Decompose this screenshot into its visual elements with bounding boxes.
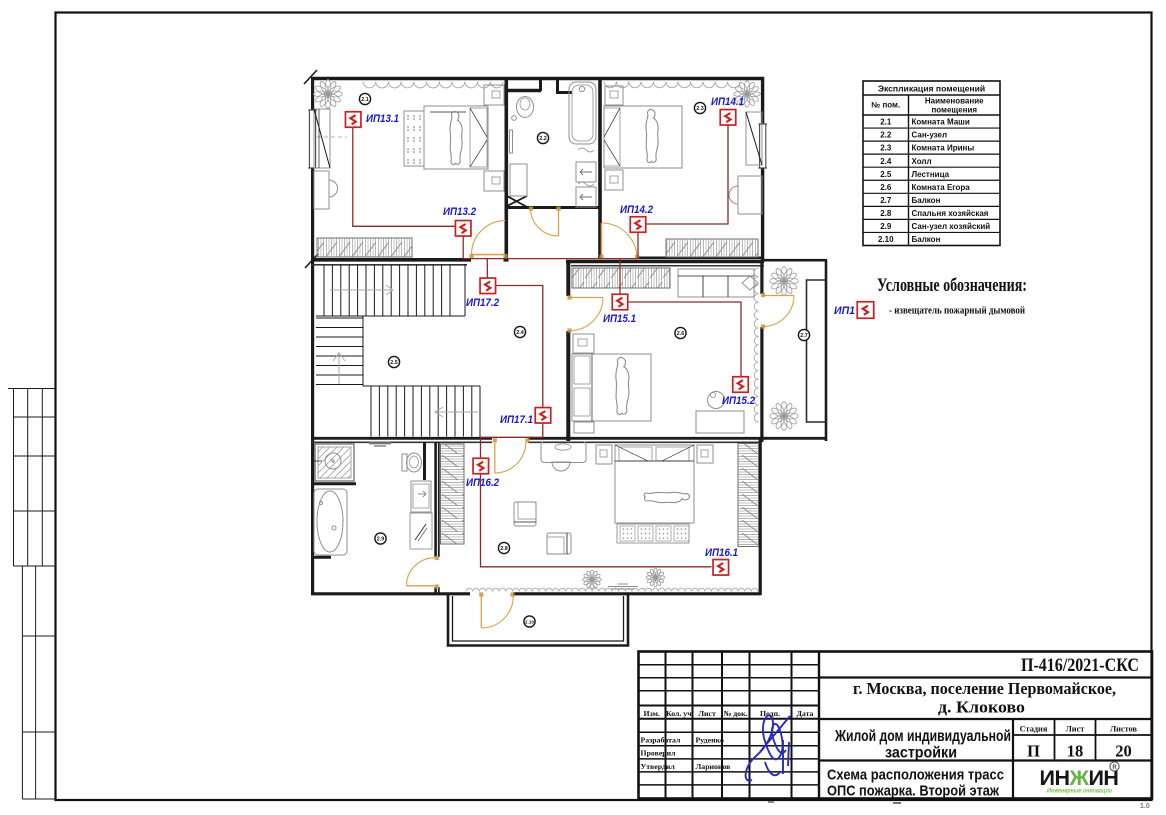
svg-text:Экспликация помещений: Экспликация помещений <box>878 84 985 94</box>
svg-text:2.3: 2.3 <box>696 106 704 112</box>
svg-text:ИП15.1: ИП15.1 <box>603 313 636 325</box>
svg-text:Холл: Холл <box>912 157 932 166</box>
svg-text:2.8: 2.8 <box>880 209 892 218</box>
svg-text:2.2: 2.2 <box>539 136 547 142</box>
svg-text:П-416/2021-СКС: П-416/2021-СКС <box>1021 655 1139 676</box>
svg-text:Инженерные инновации: Инженерные инновации <box>1047 788 1112 795</box>
svg-text:Комната Егора: Комната Егора <box>912 183 971 192</box>
svg-text:ИНЖИН: ИНЖИН <box>1040 766 1119 790</box>
svg-text:Жилой дом индивидуальной: Жилой дом индивидуальной <box>834 728 1011 745</box>
svg-text:Лист: Лист <box>698 709 716 718</box>
svg-text:Кол. уч: Кол. уч <box>666 709 692 718</box>
svg-text:Спальня хозяйская: Спальня хозяйская <box>912 209 989 218</box>
svg-text:2.1: 2.1 <box>880 118 892 127</box>
svg-text:застройки: застройки <box>885 745 957 762</box>
svg-text:ИП17.1: ИП17.1 <box>500 414 533 426</box>
svg-text:Условные обозначения:: Условные обозначения: <box>877 276 1027 296</box>
svg-text:- извещатель пожарный дымовой: - извещатель пожарный дымовой <box>889 306 1025 317</box>
svg-text:Утвердил: Утвердил <box>641 762 676 771</box>
svg-text:ИП15.2: ИП15.2 <box>722 395 756 407</box>
svg-text:2.5: 2.5 <box>880 170 892 179</box>
svg-text:18: 18 <box>1067 742 1084 761</box>
svg-text:ИП13.1: ИП13.1 <box>366 113 399 125</box>
svg-text:2.6: 2.6 <box>880 183 892 192</box>
svg-text:помещения: помещения <box>931 106 977 115</box>
svg-text:Балкон: Балкон <box>912 235 941 244</box>
svg-text:Проверил: Проверил <box>641 749 677 758</box>
svg-text:2.8: 2.8 <box>500 546 508 552</box>
svg-text:Листов: Листов <box>1110 724 1138 733</box>
svg-text:2.4: 2.4 <box>516 330 524 336</box>
svg-text:д. Клоково: д. Клоково <box>938 698 1025 717</box>
svg-text:Схема расположения трасс: Схема расположения трасс <box>827 767 1004 784</box>
svg-text:ОПС пожарка. Второй этаж: ОПС пожарка. Второй этаж <box>827 783 999 800</box>
svg-text:Комната Ирины: Комната Ирины <box>912 144 975 153</box>
svg-text:2.1: 2.1 <box>361 97 369 103</box>
svg-text:2.7: 2.7 <box>800 333 808 339</box>
svg-text:Сан-узел: Сан-узел <box>912 131 948 140</box>
svg-text:ИП16.2: ИП16.2 <box>466 477 500 489</box>
svg-text:Руденко: Руденко <box>696 735 724 744</box>
svg-text:Балкон: Балкон <box>912 196 941 205</box>
svg-text:ИП16.1: ИП16.1 <box>705 547 738 559</box>
svg-text:2.2: 2.2 <box>880 131 892 140</box>
svg-text:Наименование: Наименование <box>925 97 984 106</box>
svg-text:Изм.: Изм. <box>644 709 660 718</box>
svg-text:г. Москва, поселение Первомайс: г. Москва, поселение Первомайское, <box>853 679 1116 698</box>
svg-text:Дата: Дата <box>797 709 814 718</box>
svg-text:20: 20 <box>1115 742 1132 761</box>
svg-text:Разработал: Разработал <box>641 735 682 744</box>
svg-text:Стадия: Стадия <box>1020 724 1048 733</box>
svg-text:2.3: 2.3 <box>880 144 892 153</box>
svg-text:Лист: Лист <box>1066 724 1085 733</box>
svg-text:ИП13.2: ИП13.2 <box>443 206 477 218</box>
svg-text:2.6: 2.6 <box>677 331 685 337</box>
svg-text:2.10: 2.10 <box>878 235 894 244</box>
svg-text:ИП14.2: ИП14.2 <box>620 204 654 216</box>
svg-text:2.10: 2.10 <box>525 619 534 624</box>
svg-text:2.4: 2.4 <box>880 157 892 166</box>
svg-text:2.7: 2.7 <box>880 196 892 205</box>
svg-text:Ларионов: Ларионов <box>696 762 731 771</box>
svg-text:ИП17.2: ИП17.2 <box>466 297 500 309</box>
svg-text:П: П <box>1027 742 1040 761</box>
svg-text:1.0: 1.0 <box>1140 803 1150 810</box>
svg-text:Лестница: Лестница <box>912 170 950 179</box>
svg-text:№ пом.: № пом. <box>871 101 900 110</box>
svg-text:ИП14.1: ИП14.1 <box>711 96 744 108</box>
svg-text:ИП1: ИП1 <box>834 305 855 317</box>
svg-text:Сан-узел хозяйский: Сан-узел хозяйский <box>912 222 991 231</box>
svg-text:Комната Маши: Комната Маши <box>912 118 970 127</box>
svg-text:R: R <box>1112 765 1117 771</box>
svg-text:2.9: 2.9 <box>377 536 385 542</box>
svg-text:2.5: 2.5 <box>390 360 398 366</box>
svg-text:№ док.: № док. <box>723 709 747 718</box>
svg-text:2.9: 2.9 <box>880 222 892 231</box>
